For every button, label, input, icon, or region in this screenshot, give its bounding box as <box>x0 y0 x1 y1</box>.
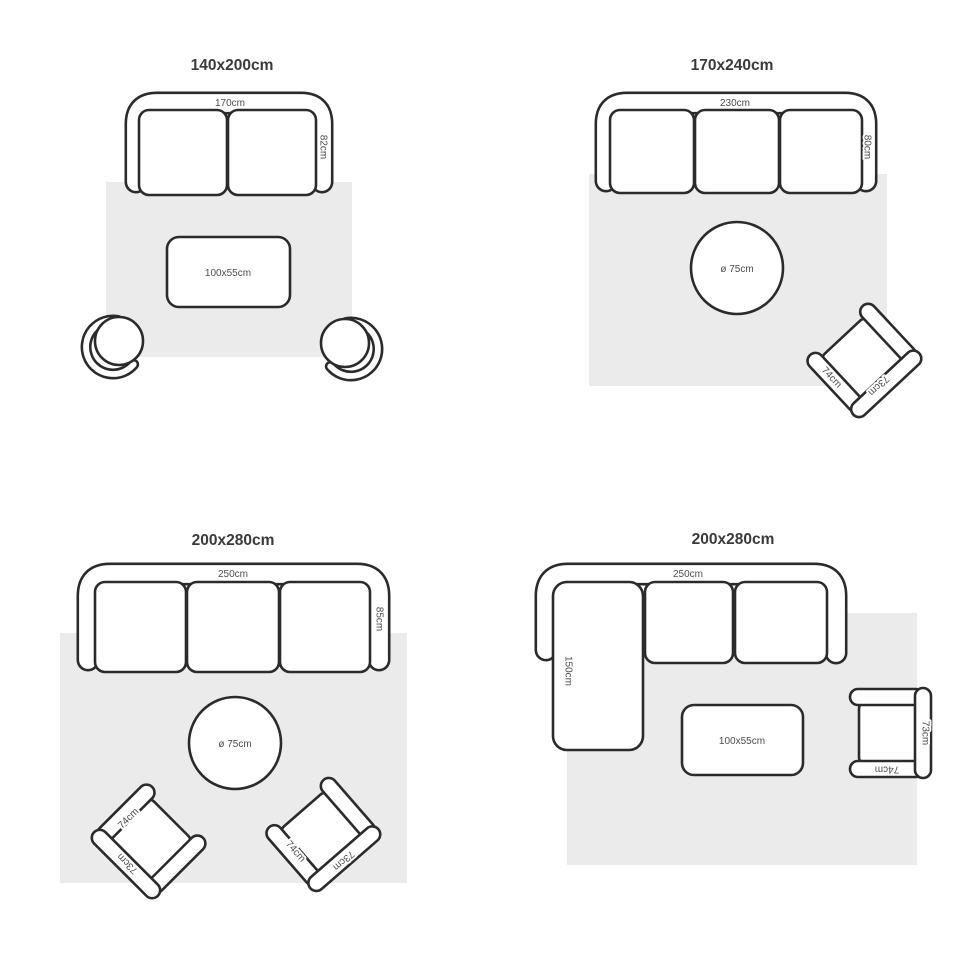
sofa-cushion <box>695 110 779 193</box>
quadrant-bottom-right: 200x280cm 250cm 150cm 100x55cm 73cm 74cm <box>546 531 931 865</box>
sofa-3-seat: 250cm 85cm <box>88 569 385 672</box>
round-coffee-table: ø 75cm <box>189 697 281 789</box>
chaise-length-label: 150cm <box>563 656 574 686</box>
sofa-cushion <box>735 582 827 663</box>
quadrant-bottom-left: 200x280cm 250cm 85cm ø 75cm 74cm 73cm 74… <box>60 532 407 902</box>
round-coffee-table: ø 75cm <box>691 222 783 314</box>
rug-size-title: 170x240cm <box>691 57 774 74</box>
armchair-back-label: 73cm <box>920 721 931 745</box>
sofa-cushion <box>780 110 862 193</box>
rug-size-title: 140x200cm <box>191 57 274 74</box>
table-size-label: 100x55cm <box>205 268 251 279</box>
armchair-arm-label: 74cm <box>875 764 899 775</box>
sofa-width-label: 250cm <box>218 569 248 580</box>
sofa-depth-label: 82cm <box>318 135 329 159</box>
table-size-label: ø 75cm <box>218 739 251 750</box>
sofa-width-label: 250cm <box>673 569 703 580</box>
quadrant-top-right: 170x240cm 230cm 80cm ø 75cm 74cm 73cm <box>589 57 925 420</box>
tub-chair <box>321 319 378 376</box>
coffee-table: 100x55cm <box>682 705 803 775</box>
table-size-label: 100x55cm <box>719 736 765 747</box>
sofa-cushion <box>610 110 694 193</box>
rug-guide-canvas: 140x200cm 170cm 82cm 100x55cm <box>0 0 970 970</box>
sofa-depth-label: 85cm <box>374 607 385 631</box>
tub-chair-seat <box>321 319 369 367</box>
sofa-cushion <box>187 582 279 672</box>
sofa-depth-label: 80cm <box>862 135 873 159</box>
rug-size-title: 200x280cm <box>192 532 275 549</box>
rug-size-guide: 140x200cm 170cm 82cm 100x55cm <box>0 0 970 970</box>
sofa-cushion <box>95 582 186 672</box>
sofa-cushion <box>280 582 370 672</box>
sofa-cushion <box>139 110 227 195</box>
sofa-cushion <box>228 110 316 195</box>
sofa-width-label: 230cm <box>720 98 750 109</box>
quadrant-top-left: 140x200cm 170cm 82cm 100x55cm <box>86 57 378 376</box>
sofa-cushion <box>645 582 733 663</box>
coffee-table: 100x55cm <box>167 237 290 307</box>
table-size-label: ø 75cm <box>720 264 753 275</box>
armchair: 73cm 74cm <box>850 688 931 778</box>
sofa-2-seat: 170cm 82cm <box>136 98 329 195</box>
sofa-3-seat: 230cm 80cm <box>606 98 873 193</box>
tub-chair <box>86 317 143 374</box>
rug-size-title: 200x280cm <box>692 531 775 548</box>
sofa-width-label: 170cm <box>215 98 245 109</box>
tub-chair-seat <box>95 317 143 365</box>
